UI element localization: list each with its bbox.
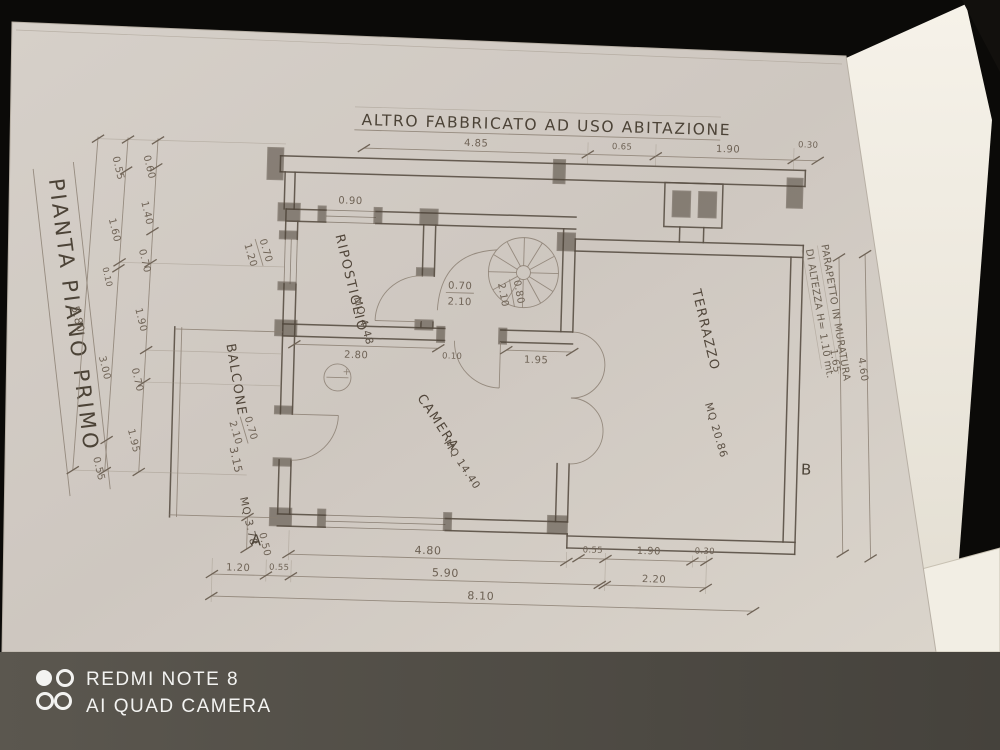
dim-south-inner: 4.80 <box>414 544 441 558</box>
dim-south-right-1: 0.55 <box>583 545 603 556</box>
watermark-device: REDMI NOTE 8 <box>86 669 239 690</box>
svg-text:0.70: 0.70 <box>448 281 473 293</box>
dim-seg-a: 2.80 <box>344 350 369 362</box>
dim-south-right-3: 0.30 <box>695 547 715 558</box>
dim-top-4: 0.30 <box>798 140 818 151</box>
dim-south-outer: 8.10 <box>467 589 494 603</box>
photo-of-floor-plan: PIANTA PIANO PRIMO ALTRO FABBRICATO AD U… <box>0 0 1000 750</box>
section-marker-b: B <box>801 460 812 478</box>
dim-south-mid-3: 5.90 <box>432 566 459 580</box>
dim-top-1: 4.85 <box>464 138 489 150</box>
dim-south-right-4: 2.20 <box>642 574 667 586</box>
dim-south-mid-1: 1.20 <box>226 562 251 574</box>
dim-south-right-2: 1.90 <box>637 546 662 558</box>
dim-south-mid-2: 0.55 <box>269 563 289 574</box>
watermark-camera: AI QUAD CAMERA <box>86 696 272 717</box>
dim-seg-b: 0.10 <box>442 351 462 362</box>
bottom-bar: REDMI NOTE 8 AI QUAD CAMERA <box>0 652 1000 750</box>
dim-window-north: 0.90 <box>338 195 363 207</box>
dim-seg-c: 1.95 <box>524 355 549 367</box>
svg-text:2.10: 2.10 <box>447 297 472 309</box>
dim-top-2: 0.65 <box>612 142 632 153</box>
dim-top-3: 1.90 <box>716 144 741 156</box>
photo-canvas: PIANTA PIANO PRIMO ALTRO FABBRICATO AD U… <box>0 0 1000 750</box>
